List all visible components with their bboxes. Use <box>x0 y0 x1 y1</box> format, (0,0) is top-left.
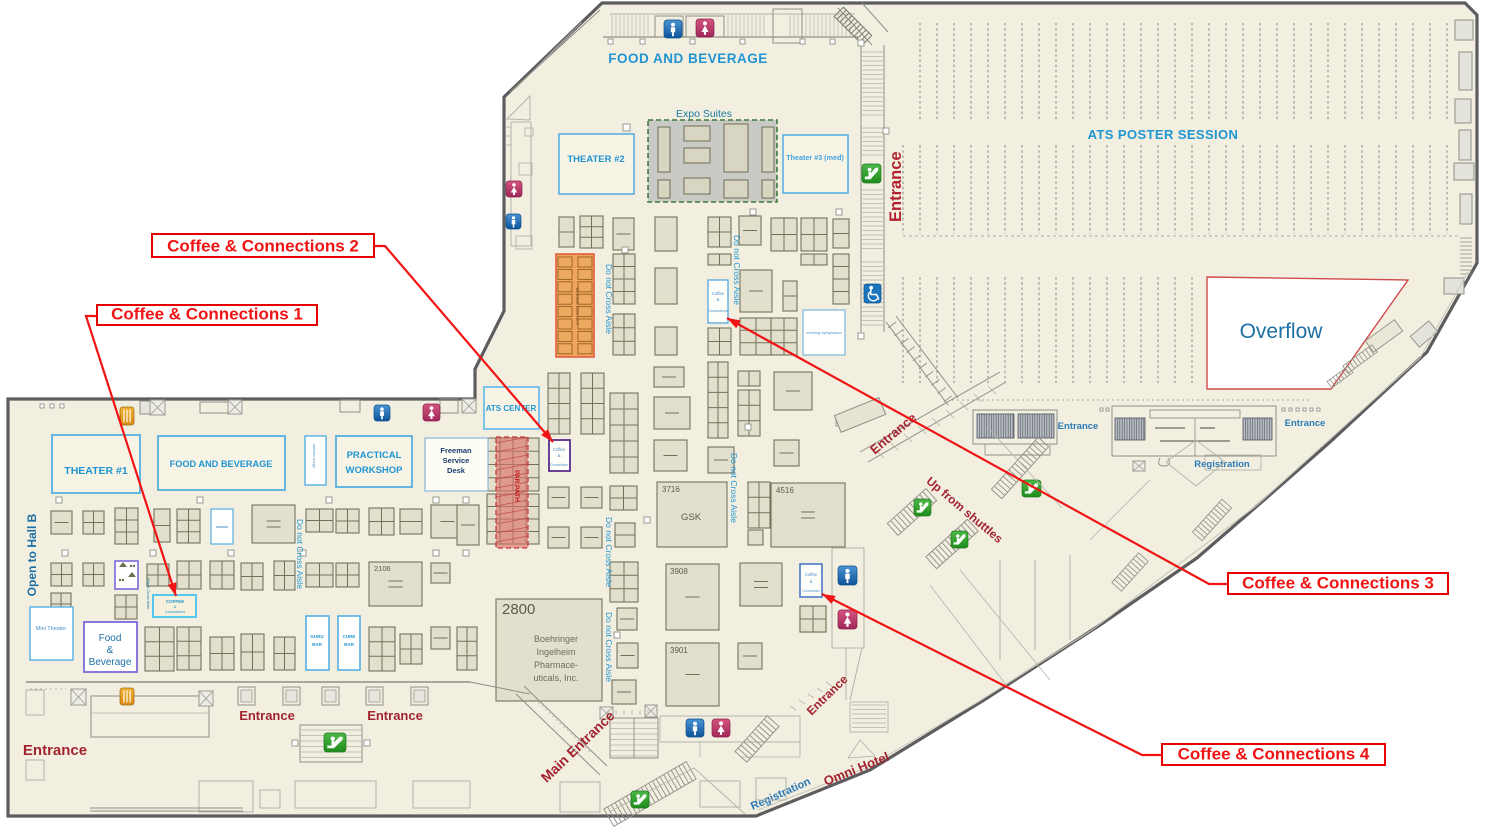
svg-text:ATS POSTER SESSION: ATS POSTER SESSION <box>1088 127 1239 142</box>
svg-text:Connections: Connections <box>550 463 568 467</box>
svg-text:3908: 3908 <box>670 567 688 576</box>
svg-text:Freeman: Freeman <box>440 446 472 455</box>
svg-text:&: & <box>810 579 813 584</box>
svg-text:Connections: Connections <box>709 309 728 313</box>
svg-text:Do not Cross Aisle: Do not Cross Aisle <box>604 517 614 587</box>
svg-text:Entrance: Entrance <box>887 151 905 222</box>
svg-text:Do not Cross Aisle: Do not Cross Aisle <box>295 519 305 589</box>
svg-text:Food: Food <box>99 633 122 644</box>
svg-text:&: & <box>107 645 114 656</box>
svg-text:Beverage: Beverage <box>89 657 132 668</box>
svg-text:PAR PATH: PAR PATH <box>513 470 520 502</box>
svg-text:&: & <box>174 604 177 609</box>
svg-text:Expo Suites: Expo Suites <box>676 108 732 120</box>
svg-text:Do not Cross Aisle: Do not Cross Aisle <box>732 235 742 305</box>
svg-text:FOOD AND BEVERAGE: FOOD AND BEVERAGE <box>608 51 768 66</box>
svg-text:GURU: GURU <box>310 634 323 639</box>
svg-text:Ingelheim: Ingelheim <box>536 647 575 657</box>
svg-text:Coffee: Coffee <box>805 572 818 577</box>
svg-text:Desk: Desk <box>447 466 466 475</box>
svg-text:CURE: CURE <box>343 634 356 639</box>
svg-text:Entrance: Entrance <box>1285 418 1326 429</box>
svg-text:GSK: GSK <box>681 512 702 523</box>
svg-text:Service: Service <box>443 456 470 465</box>
svg-text:Entrance: Entrance <box>239 708 295 723</box>
svg-text:Theater #3 (med): Theater #3 (med) <box>786 153 844 162</box>
svg-text:Do not Cross Aisle: Do not Cross Aisle <box>604 612 614 682</box>
svg-text:wellness lounge: wellness lounge <box>312 444 316 468</box>
svg-text:Coffee: Coffee <box>712 291 725 296</box>
svg-text:Overflow: Overflow <box>1240 320 1324 343</box>
svg-text:3716: 3716 <box>662 485 680 494</box>
svg-text:&: & <box>558 453 561 458</box>
svg-text:ATS CENTER: ATS CENTER <box>486 404 537 413</box>
svg-text:Coffee & Connections 1: Coffee & Connections 1 <box>111 305 303 324</box>
svg-text:Coffee & Connections 3: Coffee & Connections 3 <box>1242 574 1434 593</box>
svg-text:PRACTICAL: PRACTICAL <box>347 450 402 461</box>
svg-text:WORKSHOP: WORKSHOP <box>346 465 404 476</box>
svg-text:uticals, Inc.: uticals, Inc. <box>533 673 578 683</box>
svg-text:Entrance: Entrance <box>367 708 423 723</box>
svg-text:4516: 4516 <box>776 486 794 495</box>
svg-text:Pharmace-: Pharmace- <box>534 660 578 670</box>
svg-text:Connections: Connections <box>165 610 185 614</box>
svg-text:FOOD AND BEVERAGE: FOOD AND BEVERAGE <box>170 459 273 469</box>
svg-text:Entrance: Entrance <box>23 742 87 759</box>
svg-text:Entrance: Entrance <box>1058 421 1099 432</box>
svg-text:THEATER #2: THEATER #2 <box>567 154 624 165</box>
svg-text:evening symposium: evening symposium <box>806 330 842 335</box>
svg-text:THEATER #1: THEATER #1 <box>64 465 128 477</box>
svg-text:Do not Cross Aisle: Do not Cross Aisle <box>604 264 614 334</box>
svg-text:Open to Hall B: Open to Hall B <box>25 513 39 596</box>
svg-text:Coffee & Connections 4: Coffee & Connections 4 <box>1178 745 1370 764</box>
svg-text:Connections: Connections <box>802 589 820 593</box>
svg-text:Do not Cross Aisle: Do not Cross Aisle <box>729 453 739 523</box>
svg-text:Mini Theater: Mini Theater <box>36 626 67 632</box>
svg-text:BAR: BAR <box>344 642 354 647</box>
svg-text:2800: 2800 <box>502 601 535 618</box>
svg-text:2106: 2106 <box>374 564 391 573</box>
svg-text:Coffee & Connections 2: Coffee & Connections 2 <box>167 237 359 256</box>
svg-text:BAR: BAR <box>312 642 322 647</box>
svg-text:&: & <box>717 297 720 302</box>
svg-text:3901: 3901 <box>670 646 688 655</box>
svg-text:Boehringer: Boehringer <box>534 634 578 644</box>
svg-text:Retail Cross Aisle: Retail Cross Aisle <box>146 578 151 610</box>
svg-text:Wellness Commons: Wellness Commons <box>575 287 580 324</box>
svg-text:Coffee: Coffee <box>553 447 566 452</box>
